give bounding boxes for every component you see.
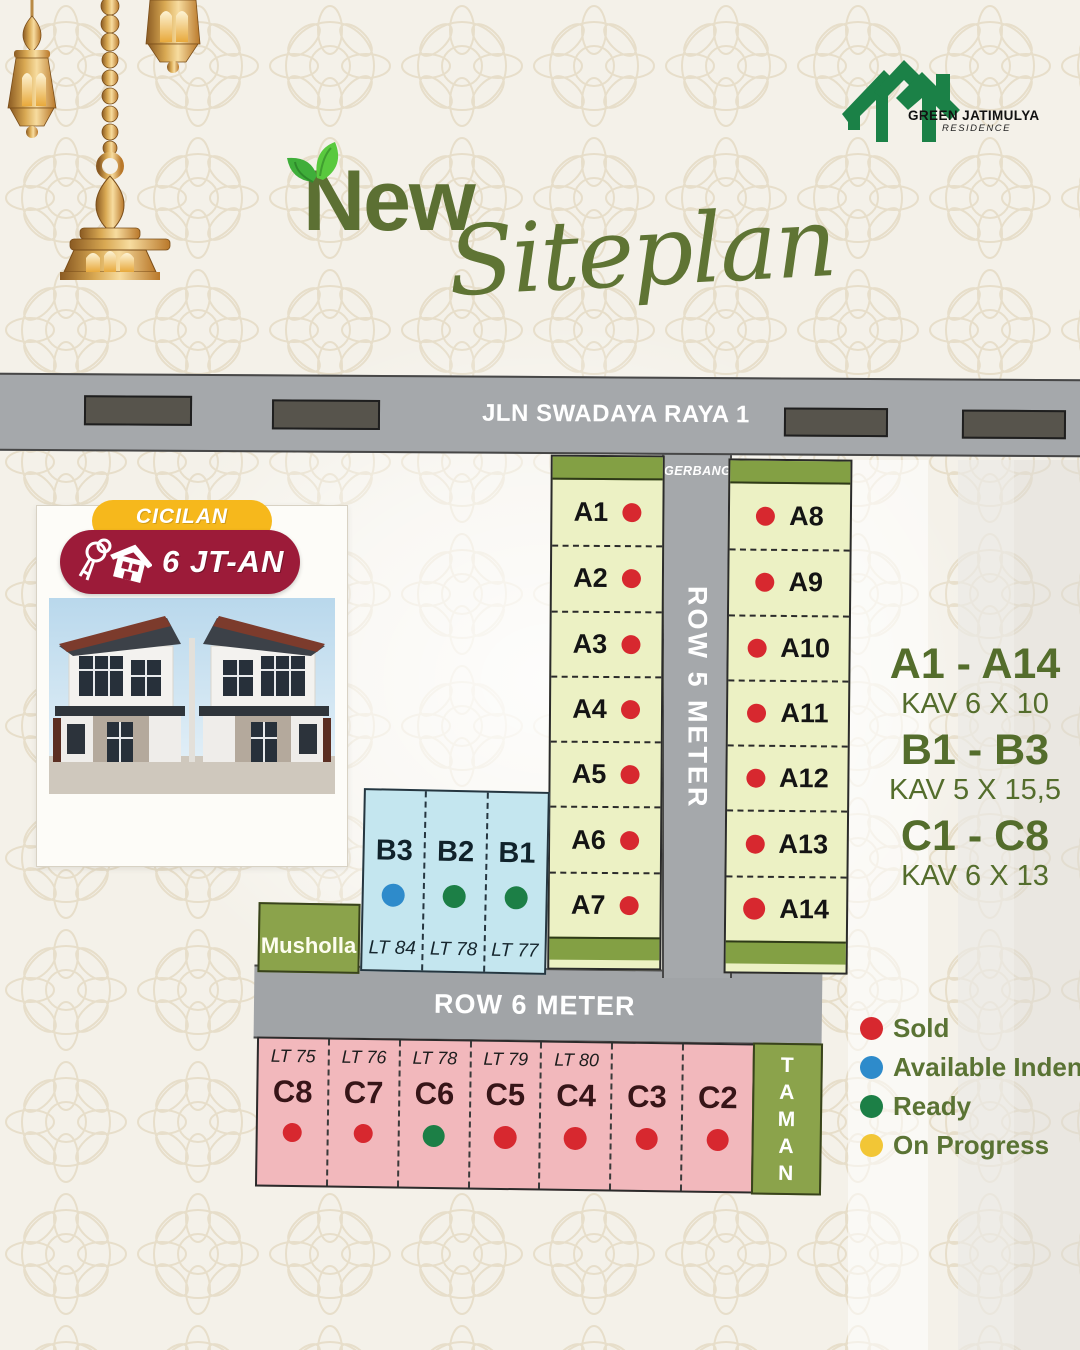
ghost-stripe <box>848 460 928 1350</box>
status-dot <box>504 886 527 909</box>
legend-dot-on-progress <box>860 1134 883 1157</box>
info-range: B1 - B3 <box>872 728 1078 772</box>
lot-label: A3 <box>573 629 608 660</box>
cicilan-label: CICILAN <box>136 505 228 529</box>
block-c: LT 75 C8 LT 76 C7 LT 78 C6 LT 79 C5 LT 8… <box>255 1037 755 1194</box>
lot-A9: A9 <box>729 549 850 615</box>
lot-A2: A2 <box>552 545 662 611</box>
main-road-label: JLN SWADAYA RAYA 1 <box>482 400 750 430</box>
info-range: C1 - C8 <box>872 814 1078 858</box>
lot-label: A8 <box>789 501 824 532</box>
status-dot <box>747 638 766 657</box>
title-word-siteplan: Siteplan <box>445 186 837 318</box>
lot-label: C4 <box>556 1078 596 1115</box>
row6-road: ROW 6 METER <box>254 965 823 1046</box>
info-size: KAV 5 X 15,5 <box>872 772 1078 808</box>
brand-name: GREEN JATIMULYA <box>908 108 1040 123</box>
taman-label: T A M A N <box>777 1051 797 1186</box>
lot-A11: A11 <box>728 679 849 745</box>
row6-road-label: ROW 6 METER <box>434 989 636 1022</box>
lot-label: A9 <box>788 567 823 598</box>
info-range: A1 - A14 <box>872 642 1078 686</box>
lot-A14: A14 <box>726 875 847 941</box>
status-dot <box>621 700 640 719</box>
lot-C3: C3 <box>611 1044 684 1191</box>
legend-label: On Progress <box>893 1130 1049 1161</box>
status-dot <box>283 1123 302 1142</box>
legend-dot-ready <box>860 1095 883 1118</box>
status-dot <box>635 1128 657 1150</box>
lot-A13: A13 <box>726 810 847 876</box>
lot-label: B2 <box>437 836 475 870</box>
lot-C6: LT 78 C6 <box>399 1041 472 1188</box>
legend-row-ready: Ready <box>860 1091 1080 1122</box>
house-photo <box>49 598 335 794</box>
lot-area-label: LT 75 <box>271 1046 316 1069</box>
green-strip <box>553 457 663 481</box>
status-legend: Sold Available Indent Ready On Progress <box>860 1013 1080 1169</box>
lot-B2: B2 LT 78 <box>423 791 488 971</box>
status-dot <box>622 503 641 522</box>
road-marking <box>84 395 192 426</box>
lantern-icon <box>0 0 250 280</box>
lot-label: A4 <box>572 694 607 725</box>
lot-label: A13 <box>778 829 828 860</box>
legend-label: Sold <box>893 1013 949 1044</box>
lot-A1: A1 <box>552 480 662 546</box>
lot-A10: A10 <box>728 614 849 680</box>
status-dot <box>619 896 638 915</box>
status-dot <box>620 765 639 784</box>
lot-label: A7 <box>571 890 606 921</box>
musholla-area: Musholla <box>257 902 360 974</box>
lot-A5: A5 <box>550 741 660 807</box>
row5-road: GERBANG ROW 5 METER <box>662 446 732 978</box>
main-road: JLN SWADAYA RAYA 1 <box>0 373 1080 458</box>
status-dot <box>756 507 775 526</box>
lot-area-label: LT 84 <box>368 937 416 960</box>
green-strip <box>726 940 846 964</box>
lot-B1: B1 LT 77 <box>485 793 548 973</box>
lot-C8: LT 75 C8 <box>257 1039 330 1186</box>
lot-C2: C2 <box>682 1044 753 1191</box>
lot-label: A2 <box>573 563 608 594</box>
lot-label: C2 <box>698 1080 738 1117</box>
legend-dot-available-indent <box>860 1056 883 1079</box>
lot-area-label: LT 78 <box>430 938 478 961</box>
lot-label: A11 <box>780 698 828 729</box>
legend-row-sold: Sold <box>860 1013 1080 1044</box>
lot-C5: LT 79 C5 <box>470 1042 543 1189</box>
lot-C7: LT 76 C7 <box>328 1040 401 1187</box>
lot-label: C3 <box>627 1079 667 1116</box>
gerbang-label: GERBANG <box>664 464 730 478</box>
ghost-stripe <box>1014 460 1080 1350</box>
block-a-left-column: A1 A2 A3 A4 A5 A6 A7 <box>547 455 665 971</box>
lot-A3: A3 <box>551 610 661 676</box>
status-dot <box>743 898 765 920</box>
info-size: KAV 6 X 13 <box>872 858 1078 894</box>
brand-subtitle: RESIDENCE <box>942 123 1011 134</box>
lot-label: A12 <box>779 763 829 794</box>
status-dot <box>443 885 466 908</box>
status-dot <box>622 570 641 589</box>
row5-road-label: ROW 5 METER <box>682 586 713 810</box>
status-dot <box>493 1126 516 1149</box>
status-dot <box>423 1125 445 1147</box>
price-label: 6 JT-AN <box>162 544 284 580</box>
block-a-right-column: A8 A9 A10 A11 A12 A13 A14 <box>724 458 853 974</box>
lot-A7: A7 <box>549 871 659 937</box>
legend-label: Ready <box>893 1091 971 1122</box>
keys-house-icon <box>74 536 152 588</box>
block-b: B3 LT 84 B2 LT 78 B1 LT 77 <box>360 788 550 975</box>
status-dot <box>745 834 764 853</box>
legend-label: Available Indent <box>893 1052 1080 1083</box>
lot-area-label: LT 79 <box>483 1049 528 1072</box>
road-marking <box>784 407 888 437</box>
green-strip <box>549 937 659 961</box>
status-dot <box>755 573 774 592</box>
lot-label: C5 <box>485 1077 525 1114</box>
ghost-stripe <box>958 460 1014 1350</box>
price-badge: 6 JT-AN <box>60 530 300 594</box>
lot-label: B3 <box>375 834 413 868</box>
road-marking <box>962 410 1066 440</box>
lot-A6: A6 <box>550 806 660 872</box>
legend-row-available-indent: Available Indent <box>860 1052 1080 1083</box>
siteplan-poster: GREEN JATIMULYA RESIDENCE New Siteplan J… <box>0 0 1080 1350</box>
status-dot <box>706 1129 728 1151</box>
lot-label: C7 <box>344 1075 384 1112</box>
brand-logo: GREEN JATIMULYA RESIDENCE <box>838 52 1048 147</box>
status-dot <box>747 704 766 723</box>
lot-label: A5 <box>572 759 607 790</box>
lot-area-label: LT 76 <box>342 1047 387 1070</box>
status-dot <box>746 769 765 788</box>
status-dot <box>620 831 639 850</box>
lot-label: A14 <box>779 894 829 925</box>
lot-label: C6 <box>414 1076 454 1113</box>
status-dot <box>621 635 640 654</box>
green-strip <box>730 460 850 484</box>
lot-B3: B3 LT 84 <box>362 790 427 970</box>
lot-size-info: A1 - A14 KAV 6 X 10 B1 - B3 KAV 5 X 15,5… <box>872 642 1078 900</box>
lot-area-label: LT 77 <box>491 940 539 963</box>
musholla-label: Musholla <box>261 933 356 959</box>
lot-A8: A8 <box>730 483 851 549</box>
status-dot <box>564 1127 587 1150</box>
lot-label: B1 <box>498 837 536 871</box>
lot-label: A10 <box>780 633 830 664</box>
info-size: KAV 6 X 10 <box>872 686 1078 722</box>
lot-label: C8 <box>273 1074 313 1111</box>
road-marking <box>272 399 380 430</box>
status-dot <box>353 1124 372 1143</box>
leaf-icon <box>283 140 363 200</box>
lot-label: A6 <box>571 824 606 855</box>
lot-A12: A12 <box>727 745 848 811</box>
legend-dot-sold <box>860 1017 883 1040</box>
lot-C4: LT 80 C4 <box>540 1043 613 1190</box>
lot-area-label: LT 80 <box>554 1050 599 1073</box>
status-dot <box>382 883 405 906</box>
lot-area-label: LT 78 <box>412 1048 457 1071</box>
lot-label: A1 <box>574 497 609 528</box>
taman-area: T A M A N <box>751 1043 823 1196</box>
lot-A4: A4 <box>551 676 661 742</box>
legend-row-on-progress: On Progress <box>860 1130 1080 1161</box>
